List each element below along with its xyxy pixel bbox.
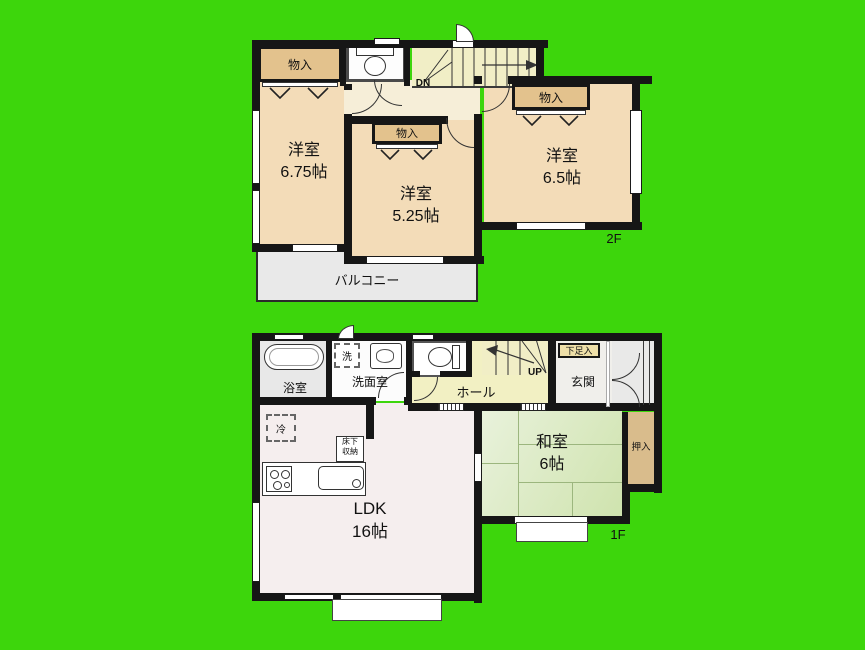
bathtub-inner bbox=[269, 348, 319, 366]
shoe-cabinet: 下足入 bbox=[558, 343, 600, 358]
tatami-line-v2 bbox=[572, 482, 573, 516]
room-65-area: 6.5帖 bbox=[488, 168, 636, 190]
f2-window-roomc-bottom bbox=[516, 222, 586, 230]
room-675-area: 6.75帖 bbox=[262, 162, 346, 184]
f1-toilet-bowl bbox=[428, 347, 452, 367]
f2-stairs-label: DN bbox=[410, 77, 436, 91]
f1-wall-midrow-a bbox=[408, 403, 438, 411]
balcony-label: バルコニー bbox=[256, 272, 478, 290]
fridge-box: 冷 bbox=[266, 414, 296, 442]
stove bbox=[266, 466, 292, 492]
f1-toilet-tank bbox=[452, 345, 460, 369]
f2-window-toilet bbox=[374, 38, 400, 45]
entrance-label: 玄関 bbox=[558, 374, 608, 390]
floorplan-canvas: DN 物入 物入 物入 bbox=[0, 0, 865, 650]
room-675-name: 洋室 bbox=[262, 140, 346, 162]
washitsu-terrace bbox=[516, 522, 588, 542]
f1-wall-bathrow-bottom-a bbox=[252, 397, 376, 405]
f2-closet-c: 物入 bbox=[512, 84, 590, 110]
f1-window-bath-top bbox=[274, 334, 304, 340]
ldk-terrace bbox=[332, 599, 442, 621]
f2-closet-b: 物入 bbox=[372, 122, 442, 144]
sink-drain bbox=[352, 479, 361, 488]
f1-wall-top bbox=[252, 333, 662, 341]
f2-floor-label: 2F bbox=[596, 230, 632, 248]
f2-closet-b-label: 物入 bbox=[396, 125, 418, 141]
room-525-area: 5.25帖 bbox=[356, 206, 476, 228]
f2-closet-a-folddoors bbox=[264, 87, 336, 100]
f2-closet-b-folddoors bbox=[378, 149, 436, 161]
floor-storage-line2: 収納 bbox=[337, 447, 363, 457]
porch-sidelight-1 bbox=[643, 341, 644, 405]
f2-window-left-2 bbox=[252, 190, 260, 244]
floor-storage-box: 床下 収納 bbox=[336, 436, 364, 462]
room-65-name: 洋室 bbox=[488, 146, 636, 168]
f2-window-left-1 bbox=[252, 110, 260, 184]
room-675-label: 洋室 6.75帖 bbox=[262, 140, 346, 183]
ldk-washitsu-sliding-door bbox=[474, 453, 482, 482]
ldk-label: LDK 16帖 bbox=[300, 498, 440, 544]
room-65-label: 洋室 6.5帖 bbox=[488, 146, 636, 189]
f2-closet-c-label: 物入 bbox=[539, 89, 563, 106]
washitsu-name: 和室 bbox=[492, 432, 612, 454]
shoe-cabinet-label: 下足入 bbox=[565, 344, 592, 357]
ldk-area: 16帖 bbox=[300, 521, 440, 544]
bathroom-label: 浴室 bbox=[262, 380, 328, 396]
f1-exterior-door-leaf bbox=[338, 325, 354, 339]
stove-burner-2 bbox=[281, 470, 290, 479]
porch-sidelight-2 bbox=[649, 341, 650, 405]
room-525-label: 洋室 5.25帖 bbox=[356, 184, 476, 227]
f2-closet-a: 物入 bbox=[258, 46, 342, 82]
washroom-label: 洗面室 bbox=[330, 374, 410, 390]
f2-window-rooma-balcony bbox=[292, 244, 338, 252]
f1-stairs-label: UP bbox=[522, 366, 548, 380]
f1-window-ldk-left bbox=[252, 502, 260, 582]
f1-wall-right-outer bbox=[654, 333, 662, 493]
f2-wall-rooma-right-stub bbox=[344, 84, 352, 90]
f1-wall-kitchen-stub bbox=[366, 403, 374, 439]
f2-window-roomb-balcony bbox=[366, 256, 444, 264]
washitsu-area: 6帖 bbox=[492, 454, 612, 476]
hall-ldk-sliding-door bbox=[438, 403, 464, 411]
washbasin-bowl bbox=[376, 349, 394, 363]
floor-storage-line1: 床下 bbox=[337, 437, 363, 447]
tatami-line-h2 bbox=[518, 482, 622, 483]
f2-closet-a-label: 物入 bbox=[288, 56, 312, 73]
f2-closet-c-folddoors bbox=[518, 115, 584, 127]
laundry-box: 洗 bbox=[334, 343, 360, 368]
laundry-label: 洗 bbox=[342, 348, 352, 363]
hall-label: ホール bbox=[426, 384, 526, 402]
f1-wall-ldk-washitsu-a bbox=[474, 403, 482, 453]
washitsu-label: 和室 6帖 bbox=[492, 432, 612, 475]
f2-wall-toilet-right bbox=[404, 40, 410, 86]
stove-burner-4 bbox=[284, 482, 290, 488]
stove-burner-1 bbox=[270, 470, 279, 479]
ldk-name: LDK bbox=[300, 498, 440, 521]
f2-wall-rooma-right bbox=[344, 114, 352, 260]
f1-floor-label: 1F bbox=[600, 526, 636, 544]
f1-wall-midrow-c bbox=[546, 403, 662, 411]
f1-wall-hall-genkan bbox=[548, 333, 556, 407]
f1-wall-toilet-bottom-b bbox=[440, 371, 472, 377]
f2-wall-center-upper bbox=[474, 76, 482, 84]
f1-wall-midrow-b bbox=[464, 403, 520, 411]
fridge-label: 冷 bbox=[276, 421, 286, 436]
f2-wall-roomc-top bbox=[508, 76, 652, 84]
f1-wall-ldk-washitsu-b bbox=[474, 482, 482, 603]
kitchen-sink bbox=[318, 466, 364, 490]
oshiire-label: 押入 bbox=[626, 442, 656, 455]
f1-window-ldk-bottom-1 bbox=[284, 594, 334, 600]
f2-toilet-bowl bbox=[364, 56, 386, 76]
f2-exterior-door-leaf bbox=[456, 24, 474, 42]
stove-burner-3 bbox=[273, 481, 282, 490]
f1-window-toilet-top bbox=[412, 334, 434, 340]
room-525-name: 洋室 bbox=[356, 184, 476, 206]
hall-washitsu-sliding-door bbox=[520, 403, 546, 411]
